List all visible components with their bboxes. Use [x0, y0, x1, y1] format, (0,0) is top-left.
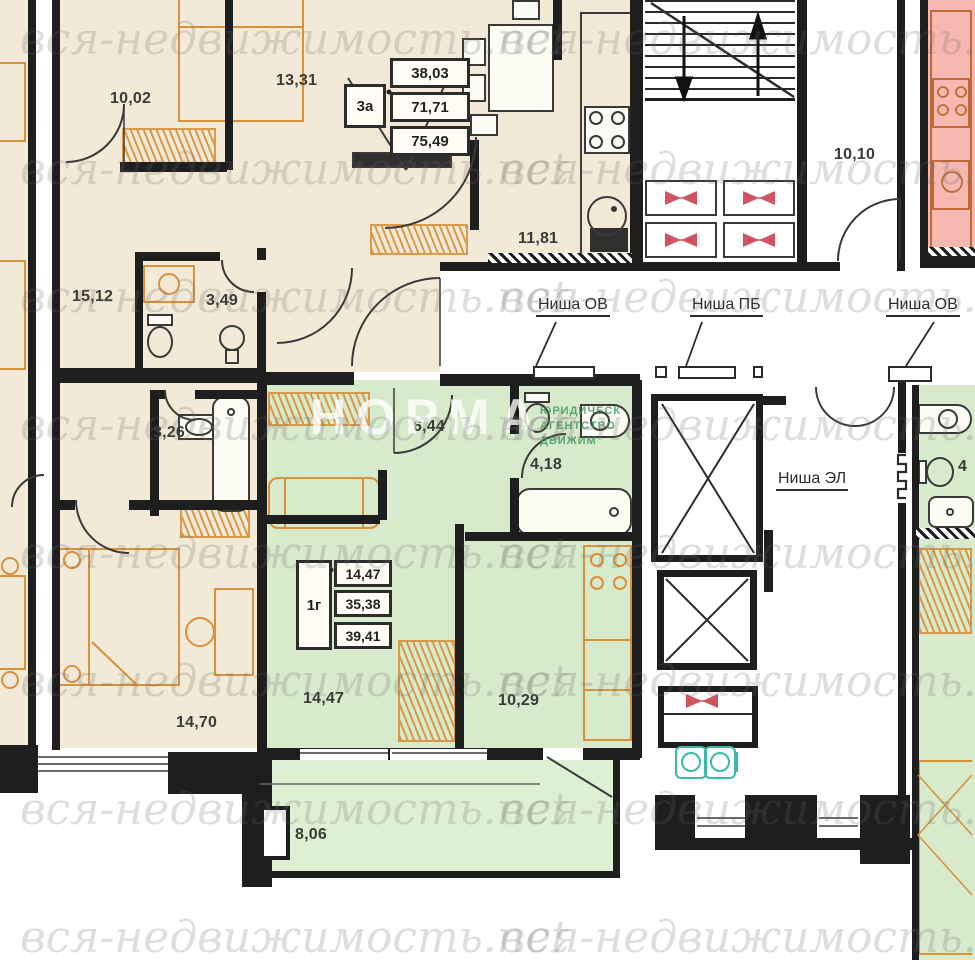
exterior-pier	[0, 745, 38, 793]
bed-room-10-02	[178, 0, 304, 122]
wall	[135, 252, 220, 261]
wall	[510, 478, 519, 536]
stamp-3a-living-area: 38,03	[390, 58, 470, 88]
room-area-label: 3,26	[153, 424, 185, 442]
kitchen-counter-pink	[930, 10, 972, 256]
bed-room-14-70	[58, 548, 180, 686]
niche-label-ov-1: Ниша ОВ	[536, 296, 610, 317]
wall-niche	[678, 366, 736, 379]
dining-table-kitchen	[488, 24, 554, 112]
wall	[920, 0, 928, 266]
wall	[455, 524, 464, 754]
watermark-text: вся-недвижимость.net	[20, 912, 569, 960]
room-area-label: 6,44	[413, 418, 445, 436]
chair	[512, 0, 540, 20]
fire-cabinet	[723, 180, 795, 216]
stamp-1g-living-area: 14,47	[334, 560, 392, 587]
wall	[912, 385, 919, 960]
room-area-label: 15,12	[72, 288, 113, 306]
bathtub-4-18	[516, 488, 632, 536]
wall	[553, 0, 562, 60]
wall-stub	[764, 530, 773, 592]
elevator-shaft-large	[651, 394, 763, 562]
chair	[470, 114, 498, 136]
wall	[150, 390, 159, 516]
room-area-label: 11,81	[518, 230, 558, 248]
stairwell-wall	[630, 0, 643, 271]
stamp-3a-total-area: 71,71	[390, 92, 470, 122]
balcony-wall	[613, 752, 620, 878]
wall-stub	[760, 396, 786, 405]
area-value: 14,47	[345, 566, 380, 582]
bed-pillow-line	[178, 26, 304, 28]
fire-cabinet	[723, 222, 795, 258]
stove-pink	[932, 78, 970, 128]
area-value: 39,41	[345, 628, 380, 644]
niche-label-el: Ниша ЭЛ	[776, 470, 848, 491]
wall	[897, 0, 905, 271]
wardrobe-right-apartment	[918, 548, 972, 634]
exterior-wall	[655, 838, 912, 850]
fridge-3a	[590, 228, 628, 252]
stamp-1g-full-area: 39,41	[334, 622, 392, 649]
bed-head-line	[88, 548, 90, 686]
ventilation-symbol	[676, 747, 737, 778]
elevator-shaft-small	[657, 570, 757, 670]
stamp-1g-type-cell: 1г	[296, 560, 332, 650]
wardrobe-room-10-02	[122, 128, 216, 166]
corridor-wall	[440, 262, 840, 271]
niche-leader-lines	[536, 322, 934, 366]
wall	[378, 470, 387, 520]
wall-niche	[753, 366, 763, 378]
wall	[59, 500, 75, 510]
fire-cabinet	[645, 222, 717, 258]
area-value: 75,49	[411, 133, 449, 150]
watermark-text: вся-недвижимость.net	[500, 912, 975, 960]
toilet-tank-3-49	[147, 314, 173, 326]
room-area-label: 13,31	[276, 72, 317, 90]
fire-niche-box	[658, 686, 758, 748]
balcony-door-opening	[543, 748, 583, 760]
toilet-tank-4-18	[524, 392, 550, 403]
wall	[120, 162, 227, 172]
area-value: 38,03	[411, 65, 449, 82]
stove-3a	[584, 106, 630, 154]
window	[390, 749, 487, 760]
wall	[195, 390, 263, 399]
wall	[510, 380, 519, 434]
wall-niche	[533, 366, 595, 379]
balcony-wall	[253, 871, 620, 878]
room-area-label: 4,18	[530, 456, 562, 474]
wall	[257, 248, 266, 260]
room-area-label: 14,70	[176, 714, 217, 732]
bed-right-apartment	[918, 760, 972, 955]
sink-right-apartment	[918, 404, 972, 434]
stairwell-wall	[797, 0, 807, 266]
washing-machine-3-49	[143, 265, 195, 303]
wall	[470, 140, 479, 230]
sink-cabinet-pink	[932, 160, 970, 210]
bed-sliver	[0, 260, 26, 370]
toilet-tank-right-apartment	[918, 460, 927, 484]
wall	[225, 0, 233, 170]
apartment-type-label: 3а	[357, 98, 374, 115]
wardrobe-living-1g	[398, 640, 456, 742]
wall-niche-zigzag-patch	[894, 453, 906, 503]
wardrobe-corridor-13-31	[370, 224, 468, 255]
stamp-1g-total-area: 35,38	[334, 590, 392, 617]
fire-cabinet	[645, 180, 717, 216]
vent-hatch-right-apartment	[916, 528, 975, 539]
niche-label-pb: Ниша ПБ	[690, 296, 763, 317]
wall	[135, 252, 143, 378]
thick-wall	[59, 368, 259, 383]
thick-wall	[259, 372, 354, 385]
wall	[465, 532, 632, 541]
room-area-label: 10,02	[110, 90, 151, 108]
vent-hatch-kitchen	[488, 253, 632, 263]
wall	[920, 256, 975, 268]
room-area-label: 3,49	[206, 292, 238, 310]
exterior-pier	[860, 795, 910, 864]
sofa-sliver	[0, 62, 26, 142]
balcony-area	[258, 752, 616, 874]
wall-niche	[655, 366, 667, 378]
window	[300, 749, 388, 760]
floor-plan: 3а 38,03 71,71 75,49 1г 14,47 35,38 39,4…	[0, 0, 975, 960]
room-area-label: 8,06	[295, 826, 327, 844]
bed-sliver-2	[0, 575, 26, 670]
wall-niche	[888, 366, 932, 382]
room-area-label: 10,10	[834, 146, 875, 164]
balcony-pier	[260, 806, 290, 860]
sink-4-18	[580, 404, 630, 438]
desk-room-14-70	[214, 588, 254, 676]
wall	[129, 500, 265, 510]
wall	[265, 515, 380, 524]
vent-hatch-pink	[928, 247, 975, 256]
area-value: 35,38	[345, 596, 380, 612]
apartment-type-label: 1г	[307, 597, 322, 614]
area-value: 71,71	[411, 99, 449, 116]
room-area-label: 10,29	[498, 692, 539, 710]
room-area-label-partial: 4	[958, 458, 967, 476]
exterior-pier	[168, 752, 248, 794]
stair-landing-line	[645, 98, 795, 101]
bathtub-3-26	[212, 396, 250, 512]
wardrobe-hall-1g	[268, 392, 370, 426]
bathtub-right-apartment	[928, 496, 974, 528]
staircase-treads	[645, 0, 795, 98]
kitchen-counter-1g	[583, 545, 632, 741]
niche-label-ov-2: Ниша ОВ	[886, 296, 960, 317]
wall	[632, 380, 642, 758]
wall	[28, 0, 36, 750]
room-area-label: 14,47	[303, 690, 344, 708]
stamp-3a-full-area: 75,49	[390, 126, 470, 156]
apartment-3a-left-area	[59, 250, 440, 372]
stamp-3a-type-cell: 3а	[344, 84, 386, 128]
wall	[257, 380, 267, 758]
wall	[257, 292, 266, 378]
